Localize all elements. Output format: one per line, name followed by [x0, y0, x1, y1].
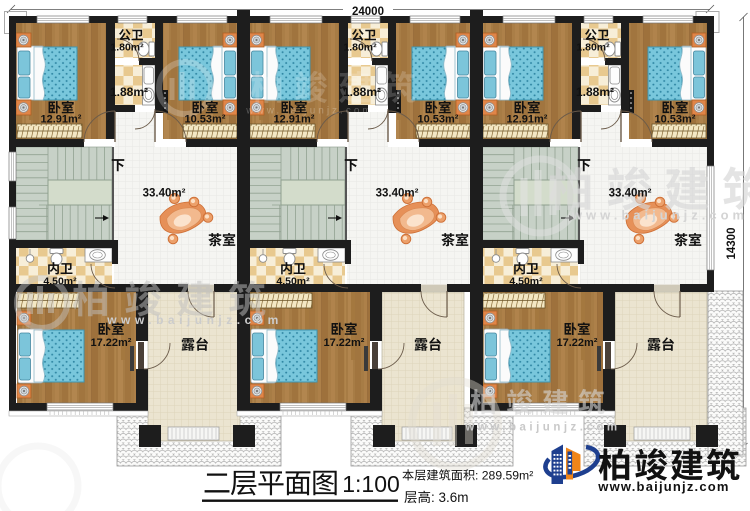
svg-text:12.91m²: 12.91m²: [274, 113, 315, 125]
svg-text:www.baijunjz.com: www.baijunjz.com: [106, 313, 283, 327]
svg-text:10.53m²: 10.53m²: [655, 113, 696, 125]
svg-text:33.40m²: 33.40m²: [376, 188, 419, 200]
svg-text:www.baijunjz.com: www.baijunjz.com: [597, 479, 729, 494]
svg-text:12.91m²: 12.91m²: [507, 113, 548, 125]
svg-text:www.baijunjz.com: www.baijunjz.com: [464, 422, 620, 434]
svg-text:1:100: 1:100: [342, 471, 400, 497]
svg-text:1.88m²: 1.88m²: [110, 85, 148, 99]
svg-text:1.80m²: 1.80m²: [343, 42, 377, 54]
svg-text:1.88m²: 1.88m²: [576, 85, 614, 99]
svg-text:1.80m²: 1.80m²: [110, 42, 144, 54]
svg-text:12.91m²: 12.91m²: [41, 113, 82, 125]
svg-text:: 3.6m: : 3.6m: [431, 490, 469, 505]
svg-text:4.50m²: 4.50m²: [43, 276, 77, 288]
svg-text:10.53m²: 10.53m²: [418, 113, 459, 125]
svg-text:33.40m²: 33.40m²: [143, 188, 186, 200]
svg-text:17.22m²: 17.22m²: [91, 337, 132, 349]
svg-text:4.50m²: 4.50m²: [276, 276, 310, 288]
svg-text:1.88m²: 1.88m²: [343, 85, 381, 99]
svg-text:www.baijunjz.com: www.baijunjz.com: [571, 208, 748, 223]
svg-text:4.50m²: 4.50m²: [509, 276, 543, 288]
svg-text:: 289.59m²: : 289.59m²: [475, 468, 533, 482]
svg-text:10.53m²: 10.53m²: [185, 113, 226, 125]
svg-text:14300: 14300: [726, 228, 738, 260]
svg-text:33.40m²: 33.40m²: [609, 188, 652, 200]
svg-text:17.22m²: 17.22m²: [557, 337, 598, 349]
svg-text:1.80m²: 1.80m²: [576, 42, 610, 54]
svg-text:17.22m²: 17.22m²: [324, 337, 365, 349]
